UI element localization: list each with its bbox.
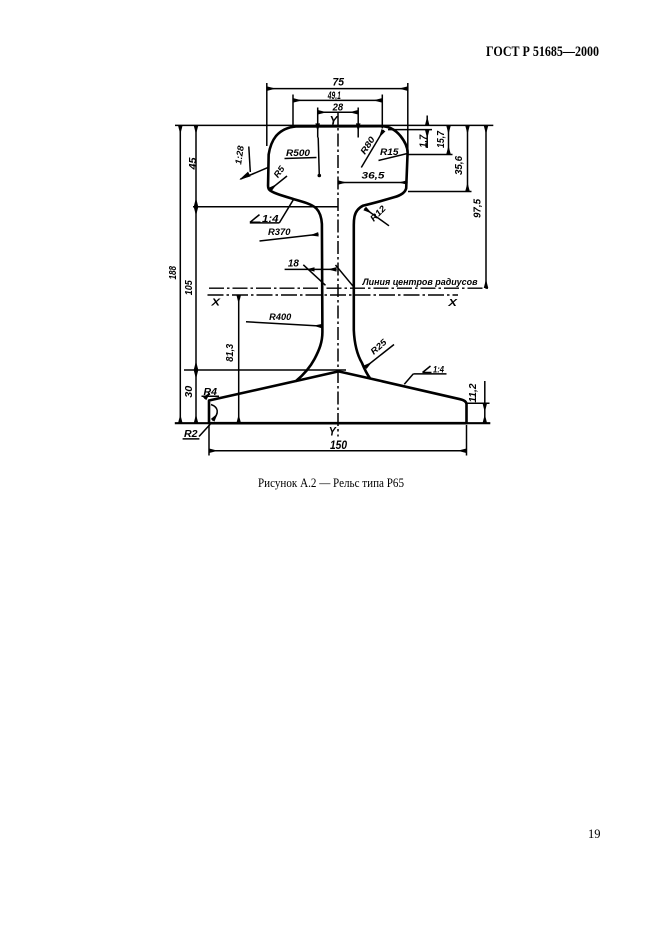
svg-text:1:28: 1:28 [233,145,246,165]
svg-text:105: 105 [183,280,195,295]
svg-text:35,6: 35,6 [454,156,465,175]
svg-text:Линия центров радиусов: Линия центров радиусов [362,277,479,287]
svg-text:18: 18 [288,258,299,269]
svg-text:81,3: 81,3 [224,344,236,362]
svg-text:36,5: 36,5 [362,171,385,181]
svg-text:R400: R400 [269,312,291,322]
svg-text:R12: R12 [368,203,388,223]
svg-text:188: 188 [167,266,179,280]
svg-text:11,2: 11,2 [468,383,479,402]
svg-text:Рисунок А.2 — Рельс типа Р65: Рисунок А.2 — Рельс типа Р65 [258,476,404,490]
svg-text:R4: R4 [204,387,218,398]
svg-text:R15: R15 [380,147,399,157]
svg-text:R2: R2 [184,429,198,440]
svg-text:X: X [210,296,221,308]
svg-text:X: X [447,297,458,309]
svg-text:75: 75 [333,77,345,89]
svg-text:15,7: 15,7 [436,131,447,148]
svg-text:19: 19 [588,827,601,841]
svg-text:R370: R370 [268,227,291,237]
svg-text:1:4: 1:4 [433,365,444,375]
svg-text:45: 45 [187,157,199,170]
svg-text:49,1: 49,1 [327,90,341,102]
svg-text:28: 28 [332,101,344,113]
svg-text:R500: R500 [286,148,310,158]
svg-text:ГОСТ Р 51685—2000: ГОСТ Р 51685—2000 [486,44,599,60]
svg-text:30: 30 [183,386,195,398]
svg-text:Y: Y [329,427,337,439]
svg-text:1:4: 1:4 [262,214,279,225]
svg-text:97,5: 97,5 [473,199,484,218]
svg-text:1,7: 1,7 [419,134,430,147]
svg-text:Y: Y [330,116,339,128]
svg-text:150: 150 [330,440,348,452]
svg-text:R25: R25 [368,337,388,357]
